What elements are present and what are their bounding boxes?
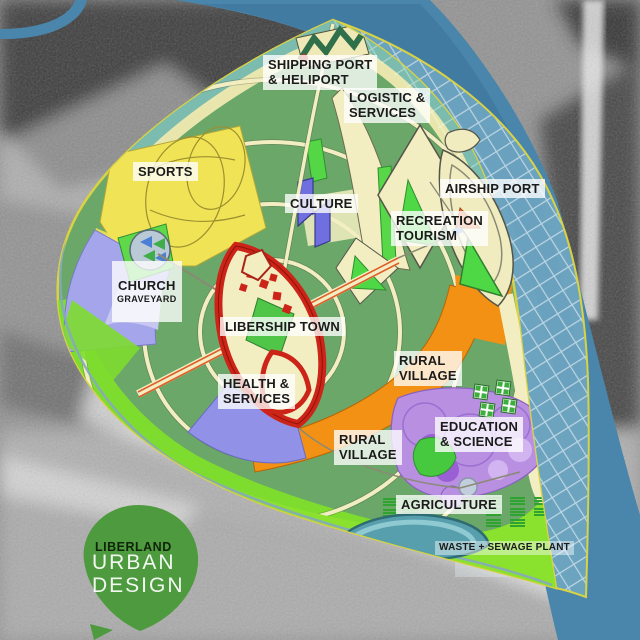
- label-culture: CULTURE: [285, 194, 358, 213]
- label-libership-town: LIBERSHIP TOWN: [220, 317, 345, 336]
- label-airship-port: AIRSHIP PORT: [440, 179, 545, 198]
- label-waste: WASTE + SEWAGE PLANT: [435, 541, 574, 555]
- label-church-title: CHURCH: [118, 278, 176, 293]
- label-shipping-port: SHIPPING PORT & HELIPORT: [263, 55, 377, 90]
- logo-urban-text: URBAN: [92, 551, 176, 575]
- label-health: HEALTH & SERVICES: [218, 374, 295, 409]
- label-church-sub: GRAVEYARD: [117, 294, 177, 305]
- logo-design-text: DESIGN: [92, 574, 185, 598]
- label-rural-east: RURAL VILLAGE: [394, 351, 462, 386]
- label-agriculture: AGRICULTURE: [396, 495, 502, 514]
- label-rural-south: RURAL VILLAGE: [334, 430, 402, 465]
- label-sports: SPORTS: [133, 162, 198, 181]
- label-logistic: LOGISTIC & SERVICES: [344, 88, 430, 123]
- label-church: CHURCH GRAVEYARD: [112, 261, 182, 322]
- label-education: EDUCATION & SCIENCE: [435, 417, 523, 452]
- label-recreation: RECREATION TOURISM: [391, 211, 488, 246]
- map-stage: SHIPPING PORT & HELIPORT LOGISTIC & SERV…: [0, 0, 640, 640]
